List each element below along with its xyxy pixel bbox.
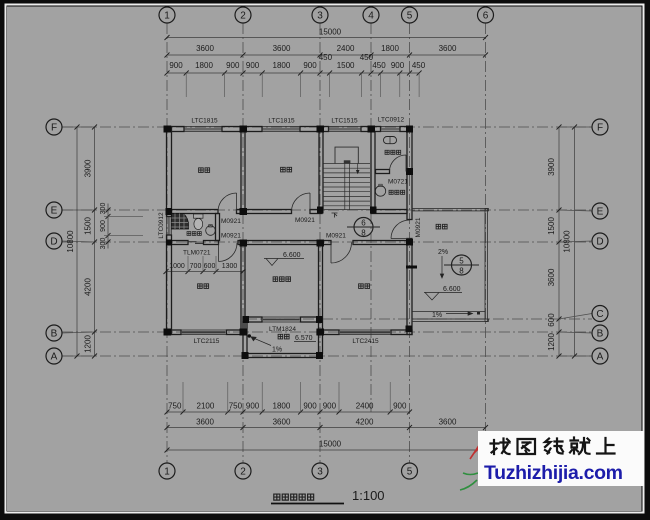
svg-text:6.600: 6.600 [443, 286, 461, 293]
svg-text:1200: 1200 [547, 333, 556, 351]
svg-text:8: 8 [361, 229, 366, 238]
svg-text:6: 6 [361, 219, 366, 228]
svg-text:750: 750 [229, 402, 243, 411]
svg-text:LTC1815: LTC1815 [191, 118, 218, 125]
svg-text:1:100: 1:100 [352, 488, 385, 503]
svg-text:3: 3 [317, 467, 323, 478]
svg-text:450: 450 [412, 61, 426, 70]
svg-text:5: 5 [407, 467, 413, 478]
svg-text:3600: 3600 [196, 418, 214, 427]
svg-text:2: 2 [240, 11, 246, 22]
svg-text:TLM0721: TLM0721 [183, 250, 211, 257]
svg-text:1500: 1500 [84, 217, 93, 235]
svg-text:E: E [51, 206, 58, 217]
svg-text:4200: 4200 [84, 278, 93, 296]
svg-text:1: 1 [164, 467, 170, 478]
svg-text:F: F [51, 123, 57, 134]
svg-text:3600: 3600 [439, 44, 457, 53]
svg-text:LTC2415: LTC2415 [352, 338, 379, 345]
svg-text:5: 5 [407, 11, 413, 22]
svg-text:900: 900 [246, 61, 260, 70]
svg-text:5: 5 [459, 257, 464, 266]
svg-text:D: D [50, 237, 57, 248]
svg-text:6.570: 6.570 [295, 335, 313, 342]
svg-text:900: 900 [246, 402, 260, 411]
svg-text:450: 450 [372, 61, 386, 70]
svg-text:3600: 3600 [273, 418, 291, 427]
svg-text:6: 6 [483, 11, 489, 22]
svg-text:1: 1 [164, 11, 170, 22]
svg-text:4: 4 [368, 11, 374, 22]
svg-text:1500: 1500 [547, 217, 556, 235]
svg-text:D: D [596, 237, 603, 248]
svg-text:450: 450 [319, 53, 333, 62]
svg-text:900: 900 [169, 61, 183, 70]
svg-text:F: F [597, 123, 603, 134]
svg-text:900: 900 [100, 220, 107, 232]
svg-text:1800: 1800 [273, 402, 291, 411]
svg-text:M0921: M0921 [295, 217, 315, 224]
svg-text:1500: 1500 [337, 61, 355, 70]
svg-text:700: 700 [190, 263, 202, 270]
svg-text:8: 8 [459, 267, 464, 276]
svg-text:3600: 3600 [439, 418, 457, 427]
svg-text:M0721: M0721 [388, 179, 408, 186]
svg-text:15000: 15000 [319, 28, 342, 37]
svg-text:1800: 1800 [381, 44, 399, 53]
svg-text:1300: 1300 [222, 263, 238, 270]
svg-text:3600: 3600 [196, 44, 214, 53]
svg-text:LTC1815: LTC1815 [268, 118, 295, 125]
svg-text:B: B [597, 329, 604, 340]
svg-text:3600: 3600 [547, 268, 556, 286]
svg-text:300: 300 [100, 203, 107, 215]
svg-text:10800: 10800 [66, 230, 75, 253]
svg-text:900: 900 [391, 61, 405, 70]
svg-text:900: 900 [303, 61, 317, 70]
svg-text:900: 900 [226, 61, 240, 70]
svg-text:LTM1824: LTM1824 [269, 326, 296, 333]
svg-text:3900: 3900 [84, 159, 93, 177]
svg-text:C: C [596, 309, 603, 320]
svg-text:2100: 2100 [197, 402, 215, 411]
svg-text:300: 300 [100, 238, 107, 250]
svg-text:1800: 1800 [195, 61, 213, 70]
svg-text:750: 750 [168, 402, 182, 411]
svg-text:600: 600 [547, 313, 556, 327]
svg-text:A: A [597, 352, 604, 363]
svg-text:E: E [597, 207, 604, 218]
svg-text:M0921: M0921 [326, 233, 346, 240]
svg-text:LTC1515: LTC1515 [331, 118, 358, 125]
svg-text:1200: 1200 [84, 335, 93, 353]
svg-text:3600: 3600 [273, 44, 291, 53]
svg-text:LTC0912: LTC0912 [158, 212, 165, 239]
svg-text:900: 900 [303, 402, 317, 411]
svg-text:3: 3 [317, 11, 323, 22]
svg-text:6.600: 6.600 [283, 252, 301, 259]
svg-text:900: 900 [393, 402, 407, 411]
svg-text:10800: 10800 [563, 230, 572, 253]
svg-text:A: A [51, 352, 58, 363]
svg-text:2: 2 [240, 467, 246, 478]
svg-text:4200: 4200 [356, 418, 374, 427]
svg-text:1800: 1800 [273, 61, 291, 70]
svg-text:M0921: M0921 [221, 233, 241, 240]
svg-text:LTC2115: LTC2115 [194, 338, 220, 345]
svg-text:B: B [51, 329, 58, 340]
svg-text:600: 600 [204, 263, 216, 270]
svg-text:15000: 15000 [319, 440, 342, 449]
svg-text:M0921: M0921 [415, 217, 422, 237]
svg-text:1%: 1% [272, 347, 282, 354]
svg-text:2400: 2400 [356, 402, 374, 411]
svg-text:2400: 2400 [337, 44, 355, 53]
svg-text:1%: 1% [432, 312, 442, 319]
svg-text:3900: 3900 [547, 158, 556, 176]
svg-text:900: 900 [323, 402, 337, 411]
svg-text:LTC0912: LTC0912 [378, 117, 405, 124]
svg-text:Tuzhizhijia.com: Tuzhizhijia.com [484, 462, 623, 484]
svg-text:M0921: M0921 [221, 218, 241, 225]
svg-text:2%: 2% [438, 249, 448, 256]
